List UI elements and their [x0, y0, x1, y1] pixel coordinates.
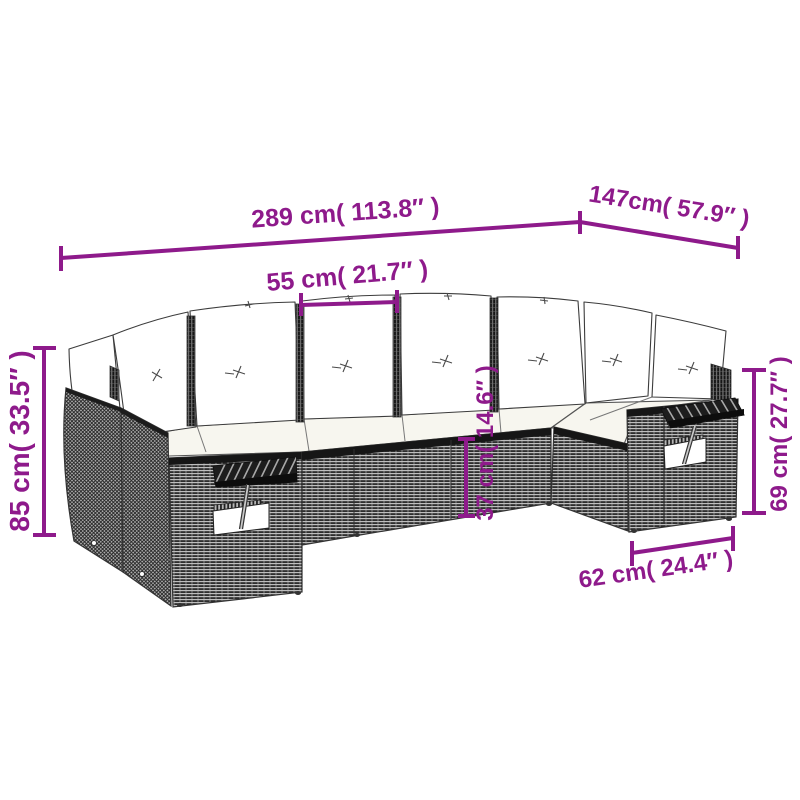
svg-text:37 cm( 14.6″ ): 37 cm( 14.6″ ) [472, 365, 499, 521]
svg-text:85 cm( 33.5″ ): 85 cm( 33.5″ ) [4, 350, 35, 532]
svg-text:69 cm( 27.7″ ): 69 cm( 27.7″ ) [766, 356, 793, 512]
